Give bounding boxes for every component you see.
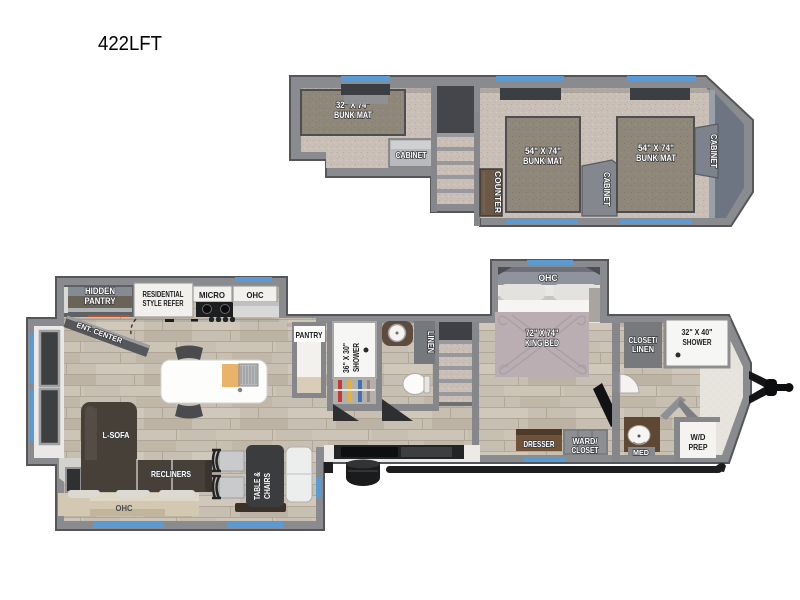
svg-text:CHAIRS: CHAIRS bbox=[263, 472, 272, 499]
svg-text:SHOWER: SHOWER bbox=[683, 338, 712, 347]
svg-text:PANTRY: PANTRY bbox=[85, 296, 116, 306]
svg-text:OHC: OHC bbox=[116, 503, 133, 513]
svg-text:KING BED: KING BED bbox=[525, 338, 559, 348]
svg-text:CABINET: CABINET bbox=[602, 172, 612, 207]
svg-text:BUNK MAT: BUNK MAT bbox=[523, 156, 563, 166]
svg-text:36" X 30": 36" X 30" bbox=[342, 343, 351, 373]
svg-text:422LFT: 422LFT bbox=[98, 33, 162, 55]
svg-text:72" X 74": 72" X 74" bbox=[526, 328, 559, 338]
svg-text:DRESSER: DRESSER bbox=[524, 439, 555, 449]
svg-text:TABLE &: TABLE & bbox=[253, 472, 262, 500]
svg-text:HIDDEN: HIDDEN bbox=[85, 286, 115, 296]
svg-text:BUNK MAT: BUNK MAT bbox=[334, 110, 372, 120]
svg-text:PREP: PREP bbox=[689, 443, 709, 452]
svg-text:SHOWER: SHOWER bbox=[352, 343, 361, 372]
svg-text:54" X 74": 54" X 74" bbox=[525, 146, 561, 156]
svg-text:CABINET: CABINET bbox=[709, 134, 719, 169]
svg-text:WARD/: WARD/ bbox=[573, 437, 599, 446]
svg-text:LINEN: LINEN bbox=[426, 331, 435, 353]
svg-text:CABINET: CABINET bbox=[396, 150, 428, 160]
svg-text:COUNTER: COUNTER bbox=[493, 171, 503, 213]
svg-text:CLOSET: CLOSET bbox=[572, 446, 599, 455]
svg-text:RESIDENTIAL: RESIDENTIAL bbox=[143, 290, 184, 299]
svg-text:54" X 74": 54" X 74" bbox=[638, 143, 674, 153]
svg-text:OHC: OHC bbox=[539, 273, 558, 283]
svg-text:W/D: W/D bbox=[691, 433, 706, 442]
svg-text:STYLE REFER: STYLE REFER bbox=[143, 299, 184, 308]
svg-text:RECLINERS: RECLINERS bbox=[151, 469, 191, 479]
svg-text:LINEN: LINEN bbox=[632, 344, 654, 354]
svg-text:BUNK MAT: BUNK MAT bbox=[636, 153, 676, 163]
svg-text:MED: MED bbox=[633, 448, 650, 457]
svg-text:32" X 40": 32" X 40" bbox=[682, 328, 713, 337]
svg-text:L-SOFA: L-SOFA bbox=[103, 430, 130, 440]
svg-text:MICRO: MICRO bbox=[199, 290, 225, 300]
svg-text:PANTRY: PANTRY bbox=[296, 330, 323, 340]
svg-text:OHC: OHC bbox=[247, 290, 264, 300]
